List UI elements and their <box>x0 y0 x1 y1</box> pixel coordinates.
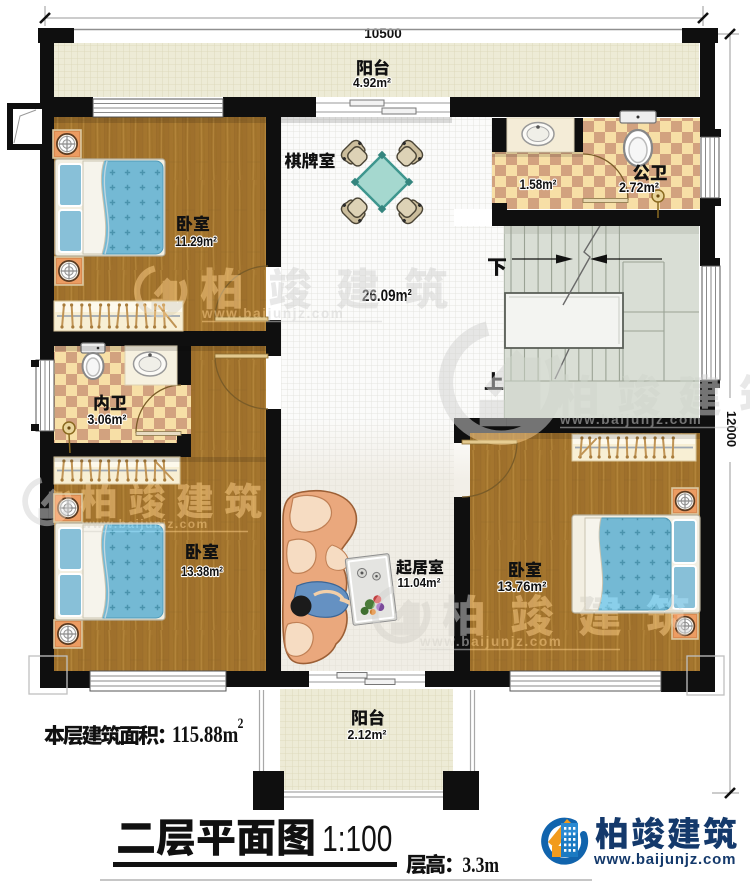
svg-text:10500: 10500 <box>364 26 402 41</box>
svg-text:2.72m²: 2.72m² <box>619 180 659 195</box>
svg-text:13.76m²: 13.76m² <box>498 578 547 594</box>
svg-text:11.04m²: 11.04m² <box>398 575 442 590</box>
svg-text:www.baijunjz.com: www.baijunjz.com <box>419 634 562 649</box>
svg-text:www.baijunjz.com: www.baijunjz.com <box>201 306 344 321</box>
svg-text:2.12m²: 2.12m² <box>348 727 388 742</box>
svg-text:13.38m²: 13.38m² <box>181 563 223 579</box>
svg-text:115.88m: 115.88m <box>172 721 239 748</box>
svg-text:3.3m: 3.3m <box>462 853 499 877</box>
svg-text:www.baijunjz.com: www.baijunjz.com <box>559 412 702 427</box>
svg-text:1:100: 1:100 <box>322 819 392 859</box>
svg-text:www.baijunjz.com: www.baijunjz.com <box>593 851 736 868</box>
svg-text:12000: 12000 <box>724 411 739 447</box>
svg-text:3.06m²: 3.06m² <box>88 412 127 427</box>
svg-text:4.92m²: 4.92m² <box>353 75 392 90</box>
svg-text:www.baijunjz.com: www.baijunjz.com <box>81 517 209 531</box>
svg-text:11.29m²: 11.29m² <box>175 233 217 249</box>
svg-text:1.58m²: 1.58m² <box>520 177 557 192</box>
svg-text:2: 2 <box>238 715 244 732</box>
